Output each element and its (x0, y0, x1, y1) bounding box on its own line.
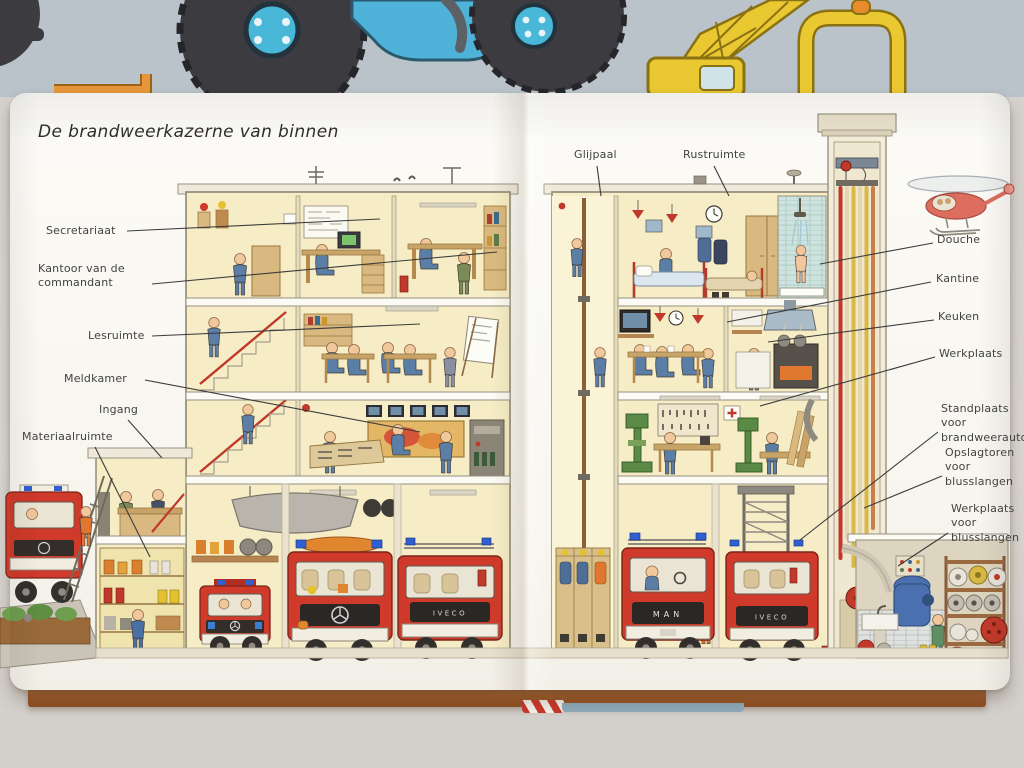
hose-workshop (842, 534, 1008, 658)
helicopter-icon (908, 176, 1014, 235)
callout-werkplaats-voor-blusslangen: Werkplaats voor blusslangen (951, 502, 1024, 545)
photo-of-open-picture-book: IVECO (0, 0, 1024, 768)
callout-rustruimte: Rustruimte (683, 148, 746, 162)
shower-head-icon (794, 212, 806, 217)
hose-washing-machine-icon (894, 584, 930, 626)
callout-lesruimte: Lesruimte (88, 329, 145, 343)
callout-werkplaats: Werkplaats (939, 347, 1002, 361)
room-materiaalruimte (100, 548, 184, 651)
right-building: MAN IVECO (544, 170, 844, 661)
drill-press-icon (626, 414, 648, 428)
callout-douche: Douche (937, 233, 980, 247)
left-building: IVECO (88, 166, 518, 661)
inflatable-boat-icon (232, 493, 358, 533)
tool-board-icon (658, 404, 718, 436)
iveco-badge: IVECO (433, 610, 467, 618)
callout-ingang: Ingang (99, 403, 138, 417)
sink-icon (862, 614, 898, 630)
outdoor-fire-truck (6, 485, 82, 603)
callout-keuken: Keuken (938, 310, 979, 324)
hose-reel-icon (981, 617, 1007, 643)
callout-kantoor-van-de-commandant: Kantoor van de commandant (38, 262, 158, 291)
street-surface (96, 648, 1008, 658)
fire-truck-man: MAN (622, 533, 714, 659)
callout-standplaats-voor-brandweerautos: Standplaats voor brandweerauto's (941, 402, 1024, 445)
callout-materiaalruimte: Materiaalruimte (22, 430, 113, 444)
callout-meldkamer: Meldkamer (64, 372, 127, 386)
outdoor-scene (0, 476, 112, 668)
callout-glijpaal: Glijpaal (574, 148, 617, 162)
room-douche (778, 196, 826, 298)
callout-kantine: Kantine (936, 272, 979, 286)
callout-opslagtoren-voor-blusslangen: Opslagtoren voor blusslangen (945, 446, 1024, 489)
pulley-icon (841, 161, 851, 171)
iveco-badge: IVECO (755, 614, 789, 622)
man-badge: MAN (653, 610, 683, 619)
callout-secretariaat: Secretariaat (46, 224, 116, 238)
page-title: De brandweerkazerne van binnen (38, 122, 339, 142)
fire-station-illustration: IVECO (0, 0, 1024, 768)
